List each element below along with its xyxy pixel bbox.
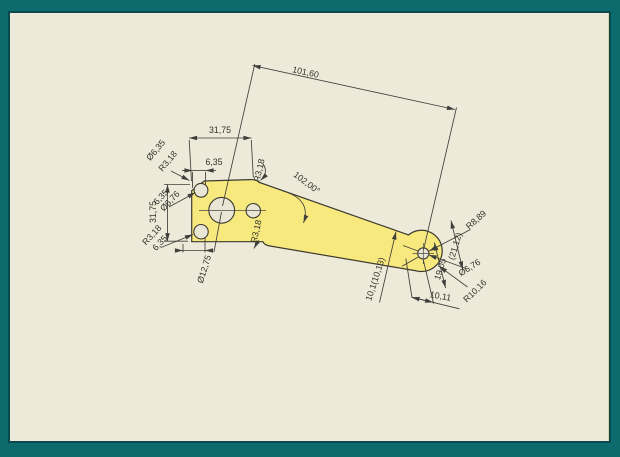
dim-hole-offset-top-label: 6,35 [205,157,222,167]
dim-head-width-top-label: 31,75 [209,125,231,135]
hole-bottom-left [194,225,208,239]
dim-taper-angle-label: 102,00° [292,169,322,195]
dim-tip-width-ref-label: (21,12) [446,231,464,261]
dim-overall-length-label: 101,60 [291,64,320,80]
dim-center-hole-dia-label: Ø12,75 [195,254,213,285]
dim-tip-end-radius-label: R10,16 [461,277,488,304]
dim-top-corner-radius-label: R3,18 [252,158,267,183]
cad-drawing-canvas: 101,60 31,75 6,35 31,75 Ø6,35 R3,18 6,35… [0,0,620,457]
dim-tip-outer-radius-label: R8,89 [464,208,488,231]
